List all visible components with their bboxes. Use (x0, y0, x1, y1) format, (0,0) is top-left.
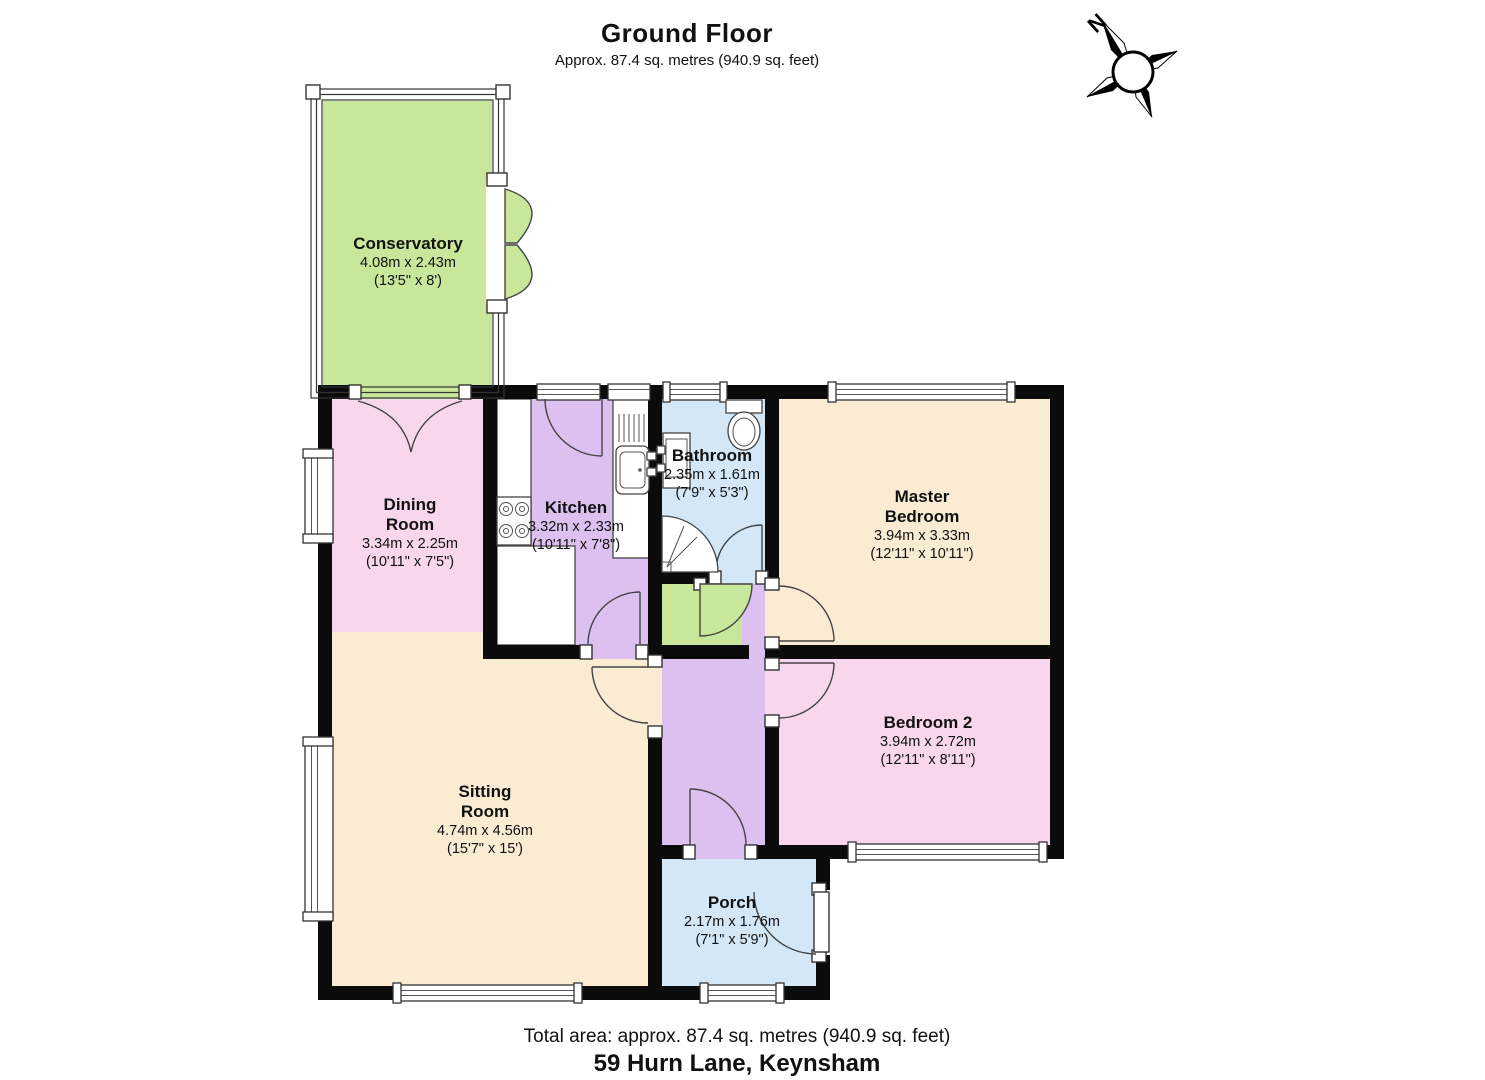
address-text: 59 Hurn Lane, Keynsham (0, 1050, 1474, 1078)
page-title: Ground Floor (0, 18, 1374, 49)
bedroom2-door-gap (765, 663, 779, 720)
sitting-room-bottom-window (393, 983, 582, 1003)
sitting-room-window (303, 737, 333, 921)
room-name: Sitting Room (445, 782, 525, 822)
hall-porch-door-gap (690, 845, 750, 859)
floorplan-page: N Ground Floor Approx. 87.4 sq. metres (… (0, 0, 1485, 1080)
room-dimensions-metric: 3.32m x 2.33m (476, 518, 676, 536)
master-bedroom-window (828, 382, 1015, 402)
sitting-door-gap (648, 662, 662, 731)
toilet-icon (726, 400, 762, 450)
total-area-text: Total area: approx. 87.4 sq. metres (940… (0, 1026, 1474, 1048)
room-label-kitchen: Kitchen 3.32m x 2.33m (10'11" x 7'8") (476, 498, 676, 554)
room-name: Bedroom 2 (808, 713, 1048, 733)
room-label-master-bedroom: Master Bedroom 3.94m x 3.33m (12'11" x 1… (802, 487, 1042, 563)
room-label-bathroom: Bathroom 2.35m x 1.61m (7'9" x 5'3") (602, 446, 822, 502)
room-dimensions-metric: 2.35m x 1.61m (602, 466, 822, 484)
room-dimensions-metric: 4.08m x 2.43m (298, 254, 518, 272)
bedroom2-window (848, 842, 1047, 862)
kitchen-sink-window (608, 384, 650, 400)
room-dimensions-imperial: (12'11" x 8'11") (808, 751, 1048, 769)
room-dimensions-imperial: (15'7" x 15') (385, 840, 585, 858)
room-dimensions-metric: 2.17m x 1.76m (632, 913, 832, 931)
room-name: Bathroom (602, 446, 822, 466)
bathroom-window (663, 382, 727, 402)
bathroom-door-gap (715, 572, 762, 584)
kitchen-door-gap (588, 645, 640, 659)
room-dimensions-imperial: (12'11" x 10'11") (802, 545, 1042, 563)
room-name: Porch (632, 893, 832, 913)
room-dimensions-metric: 3.94m x 3.33m (802, 527, 1042, 545)
room-name: Dining Room (367, 495, 453, 535)
room-dimensions-imperial: (10'11" x 7'5") (310, 553, 510, 571)
plan-footer: Total area: approx. 87.4 sq. metres (940… (0, 1026, 1474, 1078)
room-label-porch: Porch 2.17m x 1.76m (7'1" x 5'9") (632, 893, 832, 949)
master-door-gap (765, 585, 779, 642)
room-label-conservatory: Conservatory 4.08m x 2.43m (13'5" x 8') (298, 234, 518, 290)
page-subtitle: Approx. 87.4 sq. metres (940.9 sq. feet) (0, 52, 1374, 69)
room-dimensions-metric: 4.74m x 4.56m (385, 822, 585, 840)
room-label-sitting-room: Sitting Room 4.74m x 4.56m (15'7" x 15') (385, 782, 585, 858)
room-dimensions-imperial: (13'5" x 8') (298, 272, 518, 290)
room-name: Master Bedroom (862, 487, 982, 527)
room-dimensions-imperial: (10'11" x 7'8") (476, 536, 676, 554)
room-label-bedroom-2: Bedroom 2 3.94m x 2.72m (12'11" x 8'11") (808, 713, 1048, 769)
porch-bottom-window (700, 983, 784, 1003)
room-dimensions-imperial: (7'1" x 5'9") (632, 931, 832, 949)
room-dimensions-imperial: (7'9" x 5'3") (602, 484, 822, 502)
room-name: Conservatory (298, 234, 518, 254)
room-dimensions-metric: 3.94m x 2.72m (808, 733, 1048, 751)
plan-header: Ground Floor Approx. 87.4 sq. metres (94… (0, 18, 1374, 69)
kitchen-back-door-window (537, 384, 600, 400)
